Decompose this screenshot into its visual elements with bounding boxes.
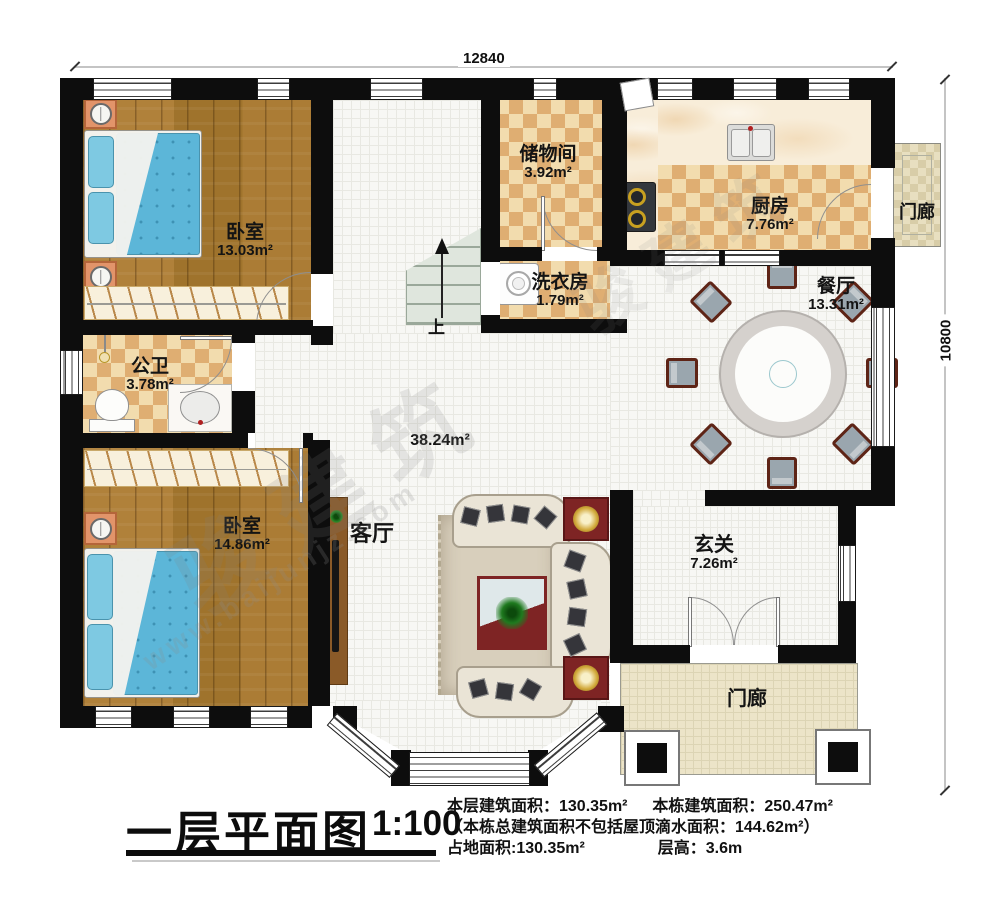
wall-entry-bottom-b bbox=[778, 645, 856, 663]
entry-door-panel-left bbox=[688, 597, 692, 647]
coffee-table-plant-icon bbox=[496, 597, 528, 629]
stat-floor-height: 层高：3.6m bbox=[658, 840, 742, 857]
nightstand bbox=[84, 512, 117, 545]
window-top-2 bbox=[257, 78, 290, 100]
dining-chair bbox=[767, 457, 797, 489]
wall-east-a bbox=[871, 78, 895, 168]
bed1-pillow-2 bbox=[88, 192, 114, 244]
window-top-4 bbox=[533, 78, 557, 100]
room-label-bathroom: 公卫 3.78m² bbox=[90, 356, 210, 394]
room-name: 厨房 bbox=[710, 196, 830, 217]
porch-column bbox=[815, 729, 871, 785]
living-area-label: 38.24m² bbox=[395, 432, 485, 450]
bed1-pillow-1 bbox=[88, 136, 114, 188]
lamp-icon bbox=[90, 266, 112, 288]
kitchen-sink-faucet bbox=[748, 126, 753, 131]
lamp-icon bbox=[573, 506, 599, 532]
room-name: 餐厅 bbox=[776, 276, 896, 297]
window-pass-2 bbox=[724, 250, 780, 266]
plan-stats: 本层建筑面积：130.35m² 本栋建筑面积：250.47m² （本栋总建筑面积… bbox=[447, 796, 833, 859]
wall-laundry-bottom bbox=[481, 319, 627, 333]
room-name: 卧室 bbox=[182, 516, 302, 537]
lamp-icon bbox=[573, 665, 599, 691]
window-top-1 bbox=[93, 78, 172, 100]
sofa-cushion bbox=[566, 578, 587, 599]
room-label-porch-bottom: 门廊 bbox=[687, 688, 807, 710]
stairs-arrow-head bbox=[435, 238, 449, 254]
window-bottom-2 bbox=[173, 706, 210, 728]
wall-living-entry bbox=[610, 490, 633, 663]
stove-burner-2 bbox=[628, 210, 646, 228]
bed2-pillow-1 bbox=[87, 554, 113, 620]
entry-door-panel-right bbox=[776, 597, 780, 647]
side-table bbox=[563, 656, 609, 700]
lamp-icon bbox=[90, 103, 112, 125]
stats-row-1: 本层建筑面积：130.35m² 本栋建筑面积：250.47m² bbox=[447, 796, 833, 817]
window-bathroom-left bbox=[60, 350, 83, 395]
room-label-kitchen: 厨房 7.76m² bbox=[710, 196, 830, 234]
laundry-door-gap bbox=[481, 262, 500, 315]
window-bottom-1 bbox=[95, 706, 132, 728]
bathroom-door-panel bbox=[180, 336, 232, 340]
window-bottom-3 bbox=[250, 706, 288, 728]
window-top-7 bbox=[808, 78, 850, 100]
wall-bathroom-bottom-a bbox=[60, 433, 248, 448]
wall-bathroom-right-a bbox=[232, 335, 255, 343]
wall-bedroom1-bottom bbox=[60, 320, 313, 335]
room-label-bedroom1: 卧室 13.03m² bbox=[185, 222, 305, 260]
room-name: 门廊 bbox=[687, 688, 807, 710]
stats-row-2: （本栋总建筑面积不包括屋顶滴水面积：144.62m²） bbox=[447, 817, 833, 838]
lamp-icon bbox=[90, 518, 112, 540]
wall-storage-laundry-b bbox=[597, 247, 610, 261]
dining-chair bbox=[666, 358, 698, 388]
room-name: 门廊 bbox=[893, 202, 941, 222]
window-top-5 bbox=[657, 78, 693, 100]
room-label-living: 客厅 bbox=[340, 522, 404, 547]
window-dining-east bbox=[871, 307, 895, 447]
room-name: 洗衣房 bbox=[500, 272, 620, 293]
sofa-cushion bbox=[511, 505, 531, 525]
wall-dining-bottom bbox=[705, 490, 895, 506]
room-area: 7.76m² bbox=[710, 217, 830, 234]
room-label-laundry: 洗衣房 1.79m² bbox=[500, 272, 620, 310]
room-area: 14.86m² bbox=[182, 537, 302, 554]
vanity-faucet bbox=[198, 420, 203, 425]
window-top-6 bbox=[733, 78, 777, 100]
wall-bedroom2-right bbox=[308, 440, 330, 706]
kitchen-sink-basin-2 bbox=[752, 129, 771, 157]
room-area: 7.26m² bbox=[654, 556, 774, 573]
title-underline bbox=[126, 850, 436, 856]
room-name: 卧室 bbox=[185, 222, 305, 243]
bed2-pillow-2 bbox=[87, 624, 113, 690]
dimension-height: 10800 bbox=[937, 315, 954, 367]
porch-right-inner-line bbox=[902, 155, 932, 235]
entry-floor bbox=[633, 506, 838, 645]
wall-bedroom1-right-a bbox=[311, 78, 333, 274]
nightstand bbox=[84, 99, 117, 129]
room-label-dining: 餐厅 13.31m² bbox=[776, 276, 896, 314]
wall-storage-laundry-a bbox=[495, 247, 542, 261]
wall-entry-bottom-a bbox=[610, 645, 690, 663]
sofa-cushion bbox=[495, 682, 514, 701]
room-area: 13.03m² bbox=[185, 243, 305, 260]
wall-left bbox=[60, 78, 83, 728]
stats-row-3: 占地面积:130.35m² 层高：3.6m bbox=[447, 838, 833, 859]
storage-door-panel bbox=[541, 196, 545, 251]
side-table bbox=[563, 497, 609, 541]
passage-floor bbox=[633, 490, 705, 506]
tv-screen bbox=[332, 540, 339, 652]
room-label-storage: 储物间 3.92m² bbox=[488, 144, 608, 182]
room-area: 3.92m² bbox=[488, 165, 608, 182]
window-pass-1 bbox=[664, 250, 720, 266]
room-area: 38.24m² bbox=[395, 432, 485, 450]
wall-entry-right-a bbox=[838, 506, 856, 545]
bedroom2-door-panel bbox=[299, 448, 303, 503]
floor-plan-canvas: 上 bbox=[0, 0, 1000, 914]
sofa-cushion bbox=[486, 504, 505, 523]
porch-column bbox=[624, 730, 680, 786]
bay-window-front bbox=[409, 752, 530, 786]
dimension-width: 12840 bbox=[458, 50, 510, 67]
room-area: 1.79m² bbox=[500, 293, 620, 310]
room-label-porch-right: 门廊 bbox=[893, 202, 941, 222]
title-underline-thin bbox=[132, 860, 440, 862]
wall-bedroom1-right-b bbox=[311, 326, 333, 345]
room-area: 3.78m² bbox=[90, 377, 210, 394]
stat-building-area: 本栋建筑面积：250.47m² bbox=[652, 798, 833, 815]
stat-floor-area: 本层建筑面积：130.35m² bbox=[447, 798, 628, 815]
stat-footprint: 占地面积:130.35m² bbox=[447, 840, 585, 857]
dimension-line-right bbox=[944, 78, 946, 790]
dining-table-ring bbox=[769, 360, 797, 388]
wall-bathroom-right-b bbox=[232, 391, 255, 433]
window-entry-east bbox=[838, 545, 856, 602]
stove-burner-1 bbox=[628, 188, 646, 206]
stairs-up-label: 上 bbox=[428, 318, 445, 337]
room-label-entry: 玄关 7.26m² bbox=[654, 534, 774, 573]
room-area: 13.31m² bbox=[776, 297, 896, 314]
fridge bbox=[620, 78, 655, 112]
room-label-bedroom2: 卧室 14.86m² bbox=[182, 516, 302, 554]
stat-total-note: （本栋总建筑面积不包括屋顶滴水面积：144.62m²） bbox=[447, 819, 820, 836]
room-name: 储物间 bbox=[488, 144, 608, 165]
room-name: 玄关 bbox=[654, 534, 774, 556]
stairs-arrow-line bbox=[441, 252, 443, 318]
window-top-3 bbox=[370, 78, 423, 100]
room-name: 公卫 bbox=[90, 356, 210, 377]
room-name: 客厅 bbox=[340, 522, 404, 547]
sofa-cushion bbox=[567, 607, 587, 627]
kitchen-sink-basin-1 bbox=[731, 129, 750, 157]
